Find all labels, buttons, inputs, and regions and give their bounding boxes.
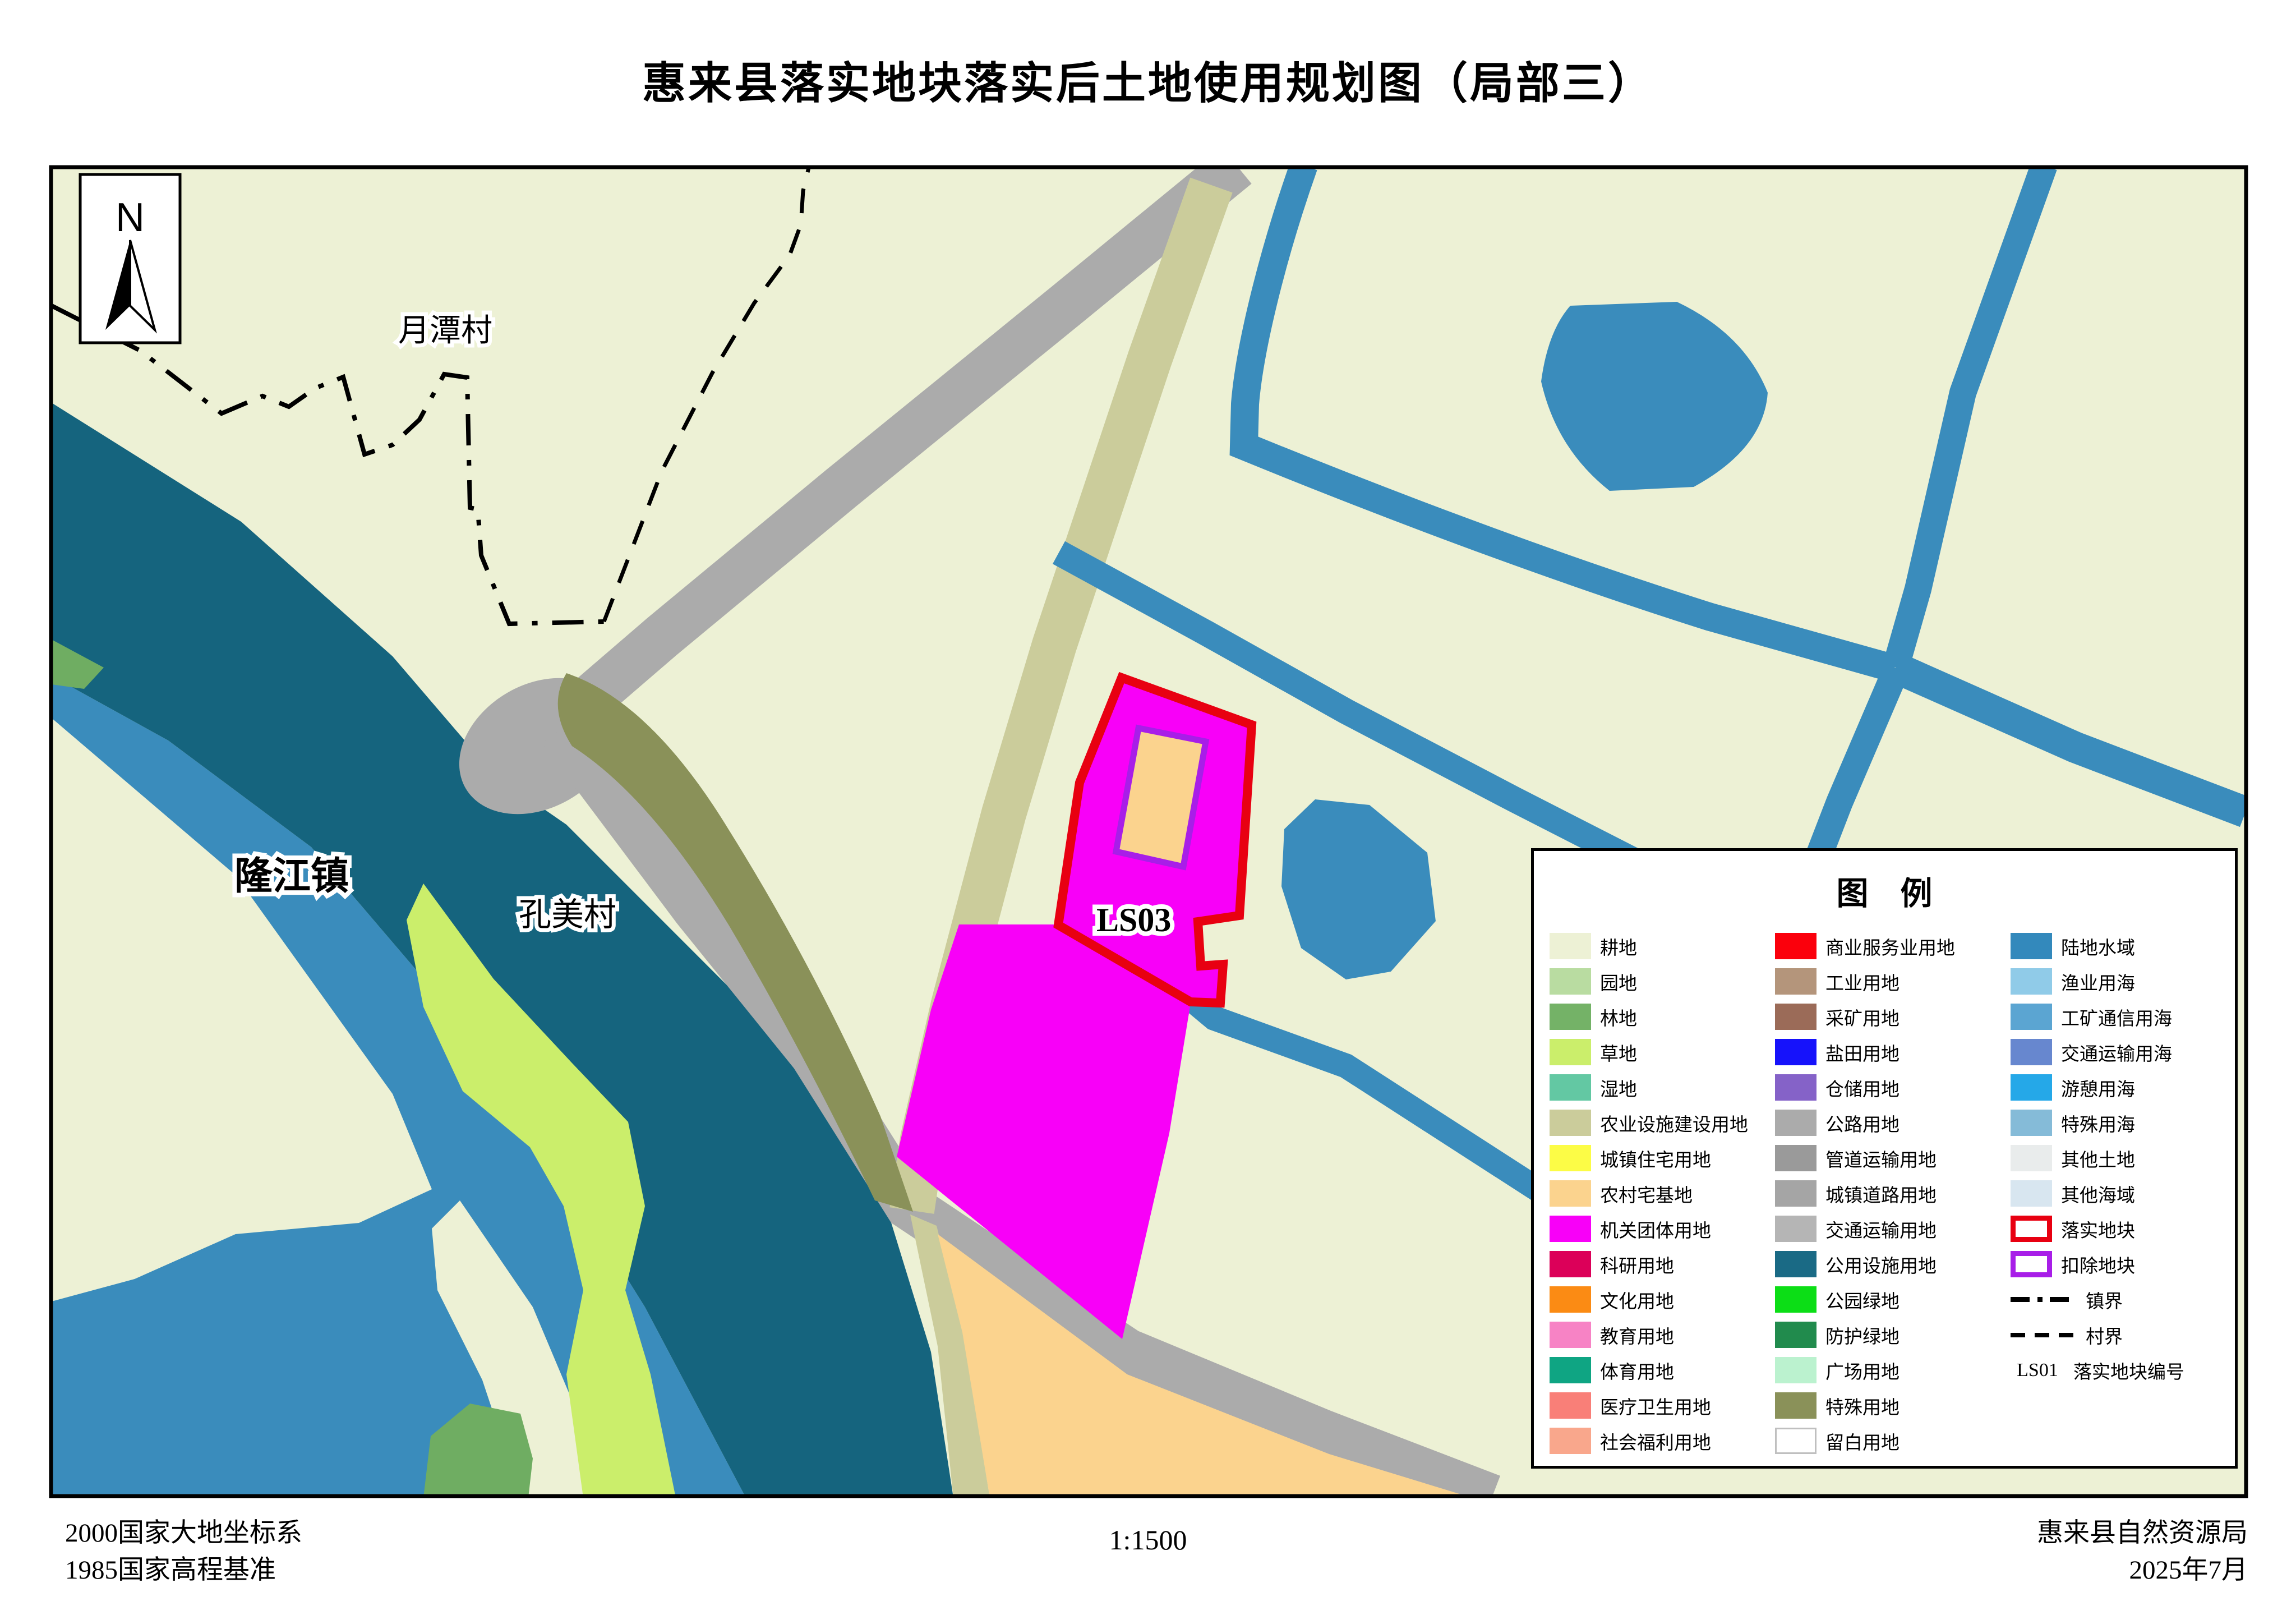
page-title: 惠来县落实地块落实后土地使用规划图（局部三） xyxy=(0,48,2296,111)
legend-label: 社会福利用地 xyxy=(1600,1428,1711,1455)
legend-swatch xyxy=(1775,1216,1816,1242)
legend-item: 防护绿地 xyxy=(1775,1317,2005,1352)
legend-column-3: 陆地水域渔业用海工矿通信用海交通运输用海游憩用海特殊用海其他土地其他海域落实地块… xyxy=(2011,928,2240,1388)
legend-label: 园地 xyxy=(1600,968,1637,995)
legend-label: 公路用地 xyxy=(1825,1110,1899,1137)
legend-swatch xyxy=(2011,968,2052,995)
legend-label: 商业服务业用地 xyxy=(1825,933,1955,960)
legend-swatch xyxy=(2011,1251,2052,1277)
legend-swatch xyxy=(1550,1039,1591,1065)
legend-item: 商业服务业用地 xyxy=(1775,928,2005,964)
legend-swatch xyxy=(1550,1251,1591,1277)
legend-label: 城镇住宅用地 xyxy=(1600,1145,1711,1172)
legend-item: 镇界 xyxy=(2011,1282,2240,1317)
legend-label: 科研用地 xyxy=(1600,1251,1674,1278)
legend-label: 游憩用海 xyxy=(2061,1074,2135,1101)
legend-swatch xyxy=(2011,1074,2052,1101)
agency-text: 惠来县自然资源局 xyxy=(2037,1515,2248,1552)
map-scale: 1:1500 xyxy=(0,1521,2296,1558)
legend-item: 公园绿地 xyxy=(1775,1282,2005,1317)
label-longjiang-town: 隆江镇 xyxy=(234,855,349,898)
date-text: 2025年7月 xyxy=(2037,1552,2248,1589)
legend-swatch xyxy=(1775,1322,1816,1348)
legend-label: 交通运输用地 xyxy=(1825,1216,1937,1243)
legend-item: 其他土地 xyxy=(2011,1140,2240,1176)
legend-swatch xyxy=(1775,1357,1816,1383)
legend-item: 特殊用地 xyxy=(1775,1388,2005,1423)
legend-column-2: 商业服务业用地工业用地采矿用地盐田用地仓储用地公路用地管道运输用地城镇道路用地交… xyxy=(1775,928,2005,1459)
legend-swatch xyxy=(1550,1322,1591,1348)
legend-swatch xyxy=(1775,1074,1816,1101)
plan-map-page: 月潭村 隆江镇 孔美村 LS03 N 惠来县落实地块落实后土地使用规划图（局部三… xyxy=(0,0,2296,1624)
legend-swatch xyxy=(2011,1180,2052,1207)
legend-item: 机关团体用地 xyxy=(1550,1211,1779,1246)
legend-item: 交通运输用海 xyxy=(2011,1034,2240,1070)
legend-label: 体育用地 xyxy=(1600,1357,1674,1384)
legend-item: 留白用地 xyxy=(1775,1423,2005,1459)
legend-label: 林地 xyxy=(1600,1004,1637,1030)
legend-label: 陆地水域 xyxy=(2061,933,2135,960)
legend-label: 防护绿地 xyxy=(1825,1322,1899,1349)
legend-swatch xyxy=(1550,1357,1591,1383)
north-arrow: N xyxy=(80,174,180,343)
legend-label: 采矿用地 xyxy=(1825,1004,1899,1030)
legend-item: 盐田用地 xyxy=(1775,1034,2005,1070)
legend-item: LS01落实地块编号 xyxy=(2011,1352,2240,1388)
legend-item: 陆地水域 xyxy=(2011,928,2240,964)
legend-item: 渔业用海 xyxy=(2011,964,2240,999)
legend-item: 社会福利用地 xyxy=(1550,1423,1779,1459)
legend-item: 特殊用海 xyxy=(2011,1105,2240,1140)
legend-label: 仓储用地 xyxy=(1825,1074,1899,1101)
legend-item: 城镇道路用地 xyxy=(1775,1176,2005,1211)
legend-swatch xyxy=(1550,1004,1591,1030)
legend-swatch xyxy=(1550,933,1591,959)
legend-swatch xyxy=(1775,1392,1816,1419)
legend-label: 村界 xyxy=(2086,1322,2123,1349)
legend-swatch xyxy=(2011,1004,2052,1030)
parcel-code-symbol: LS01 xyxy=(2011,1360,2064,1381)
legend-item: 工业用地 xyxy=(1775,964,2005,999)
legend-item: 扣除地块 xyxy=(2011,1246,2240,1282)
legend-item: 教育用地 xyxy=(1550,1317,1779,1352)
legend-item: 耕地 xyxy=(1550,928,1779,964)
legend-column-1: 耕地园地林地草地湿地农业设施建设用地城镇住宅用地农村宅基地机关团体用地科研用地文… xyxy=(1550,928,1779,1459)
legend-item: 农村宅基地 xyxy=(1550,1176,1779,1211)
legend-item: 其他海域 xyxy=(2011,1176,2240,1211)
legend-label: 特殊用地 xyxy=(1825,1392,1899,1419)
legend-label: 医疗卫生用地 xyxy=(1600,1392,1711,1419)
legend-swatch xyxy=(1775,1286,1816,1313)
legend-item: 湿地 xyxy=(1550,1070,1779,1105)
legend-label: 扣除地块 xyxy=(2061,1251,2135,1278)
label-kongmei-village: 孔美村 xyxy=(519,896,616,933)
legend-item: 管道运输用地 xyxy=(1775,1140,2005,1176)
legend-item: 林地 xyxy=(1550,999,1779,1034)
legend-swatch xyxy=(1550,1392,1591,1419)
legend-item: 文化用地 xyxy=(1550,1282,1779,1317)
legend-label: 其他土地 xyxy=(2061,1145,2135,1172)
legend-item: 医疗卫生用地 xyxy=(1550,1388,1779,1423)
footer-agency: 惠来县自然资源局 2025年7月 xyxy=(2037,1515,2248,1589)
legend-swatch xyxy=(1550,1428,1591,1454)
legend-swatch xyxy=(1550,1110,1591,1136)
legend-swatch xyxy=(1775,1039,1816,1065)
label-parcel-ls03: LS03 xyxy=(1096,901,1171,938)
legend-swatch xyxy=(2011,1145,2052,1171)
legend-swatch xyxy=(1775,933,1816,959)
legend-item: 游憩用海 xyxy=(2011,1070,2240,1105)
legend-label: 耕地 xyxy=(1600,933,1637,960)
legend-item: 农业设施建设用地 xyxy=(1550,1105,1779,1140)
label-yuetan-village: 月潭村 xyxy=(398,314,492,348)
legend-swatch xyxy=(1775,1428,1816,1454)
legend-item: 草地 xyxy=(1550,1034,1779,1070)
legend-label: 留白用地 xyxy=(1825,1428,1899,1455)
legend-label: 落实地块 xyxy=(2061,1216,2135,1243)
legend-item: 体育用地 xyxy=(1550,1352,1779,1388)
legend-swatch xyxy=(1775,1180,1816,1207)
north-arrow-label: N xyxy=(116,195,145,240)
legend-item: 园地 xyxy=(1550,964,1779,999)
legend-swatch xyxy=(2011,1216,2052,1242)
legend-label: 交通运输用海 xyxy=(2061,1039,2172,1066)
legend-label: 城镇道路用地 xyxy=(1825,1180,1937,1207)
legend-swatch xyxy=(1775,1110,1816,1136)
legend-label: 管道运输用地 xyxy=(1825,1145,1937,1172)
legend-box: 图 例 耕地园地林地草地湿地农业设施建设用地城镇住宅用地农村宅基地机关团体用地科… xyxy=(1531,848,2238,1469)
legend-item: 城镇住宅用地 xyxy=(1550,1140,1779,1176)
legend-label: 文化用地 xyxy=(1600,1286,1674,1313)
legend-swatch xyxy=(1550,1286,1591,1313)
legend-item: 公路用地 xyxy=(1775,1105,2005,1140)
legend-swatch xyxy=(1775,968,1816,995)
village-boundary-symbol xyxy=(2011,1333,2077,1337)
legend-item: 交通运输用地 xyxy=(1775,1211,2005,1246)
legend-label: 湿地 xyxy=(1600,1074,1637,1101)
legend-label: 工矿通信用海 xyxy=(2061,1004,2172,1030)
legend-title: 图 例 xyxy=(1534,868,2235,914)
legend-swatch xyxy=(1550,1074,1591,1101)
legend-item: 广场用地 xyxy=(1775,1352,2005,1388)
legend-label: 工业用地 xyxy=(1825,968,1899,995)
legend-swatch xyxy=(1775,1251,1816,1277)
legend-item: 落实地块 xyxy=(2011,1211,2240,1246)
legend-item: 科研用地 xyxy=(1550,1246,1779,1282)
legend-swatch xyxy=(2011,1110,2052,1136)
legend-swatch xyxy=(1550,1145,1591,1171)
legend-swatch xyxy=(1775,1145,1816,1171)
legend-item: 采矿用地 xyxy=(1775,999,2005,1034)
legend-item: 公用设施用地 xyxy=(1775,1246,2005,1282)
legend-label: 盐田用地 xyxy=(1825,1039,1899,1066)
legend-label: 农业设施建设用地 xyxy=(1600,1110,1748,1137)
legend-label: 特殊用海 xyxy=(2061,1110,2135,1137)
legend-label: 其他海域 xyxy=(2061,1180,2135,1207)
legend-swatch xyxy=(1550,1180,1591,1207)
town-boundary-symbol xyxy=(2011,1297,2077,1302)
legend-item: 村界 xyxy=(2011,1317,2240,1352)
legend-label: 镇界 xyxy=(2086,1286,2123,1313)
legend-swatch xyxy=(1550,968,1591,995)
legend-swatch xyxy=(1550,1216,1591,1242)
legend-label: 公园绿地 xyxy=(1825,1286,1899,1313)
legend-swatch xyxy=(2011,1039,2052,1065)
legend-label: 落实地块编号 xyxy=(2073,1357,2184,1384)
legend-label: 教育用地 xyxy=(1600,1322,1674,1349)
legend-label: 广场用地 xyxy=(1825,1357,1899,1384)
legend-label: 渔业用海 xyxy=(2061,968,2135,995)
legend-label: 农村宅基地 xyxy=(1600,1180,1693,1207)
legend-label: 公用设施用地 xyxy=(1825,1251,1937,1278)
legend-item: 仓储用地 xyxy=(1775,1070,2005,1105)
legend-item: 工矿通信用海 xyxy=(2011,999,2240,1034)
legend-label: 草地 xyxy=(1600,1039,1637,1066)
legend-swatch xyxy=(2011,933,2052,959)
legend-label: 机关团体用地 xyxy=(1600,1216,1711,1243)
legend-swatch xyxy=(1775,1004,1816,1030)
